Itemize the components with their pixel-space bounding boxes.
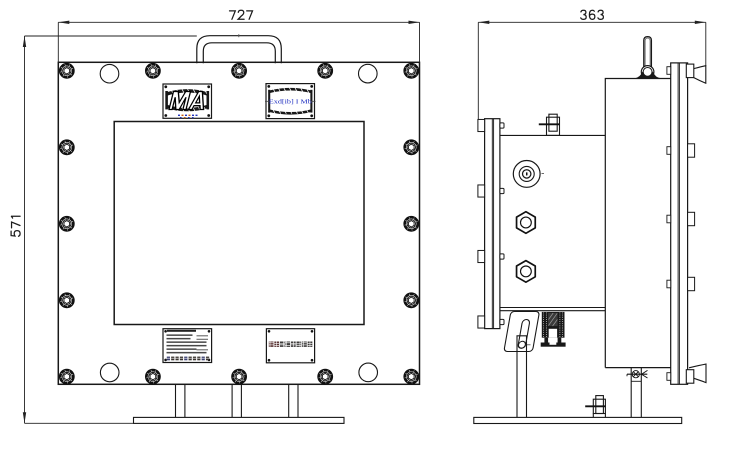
svg-text:Exd[ib] I Mb: Exd[ib] I Mb: [269, 99, 312, 106]
